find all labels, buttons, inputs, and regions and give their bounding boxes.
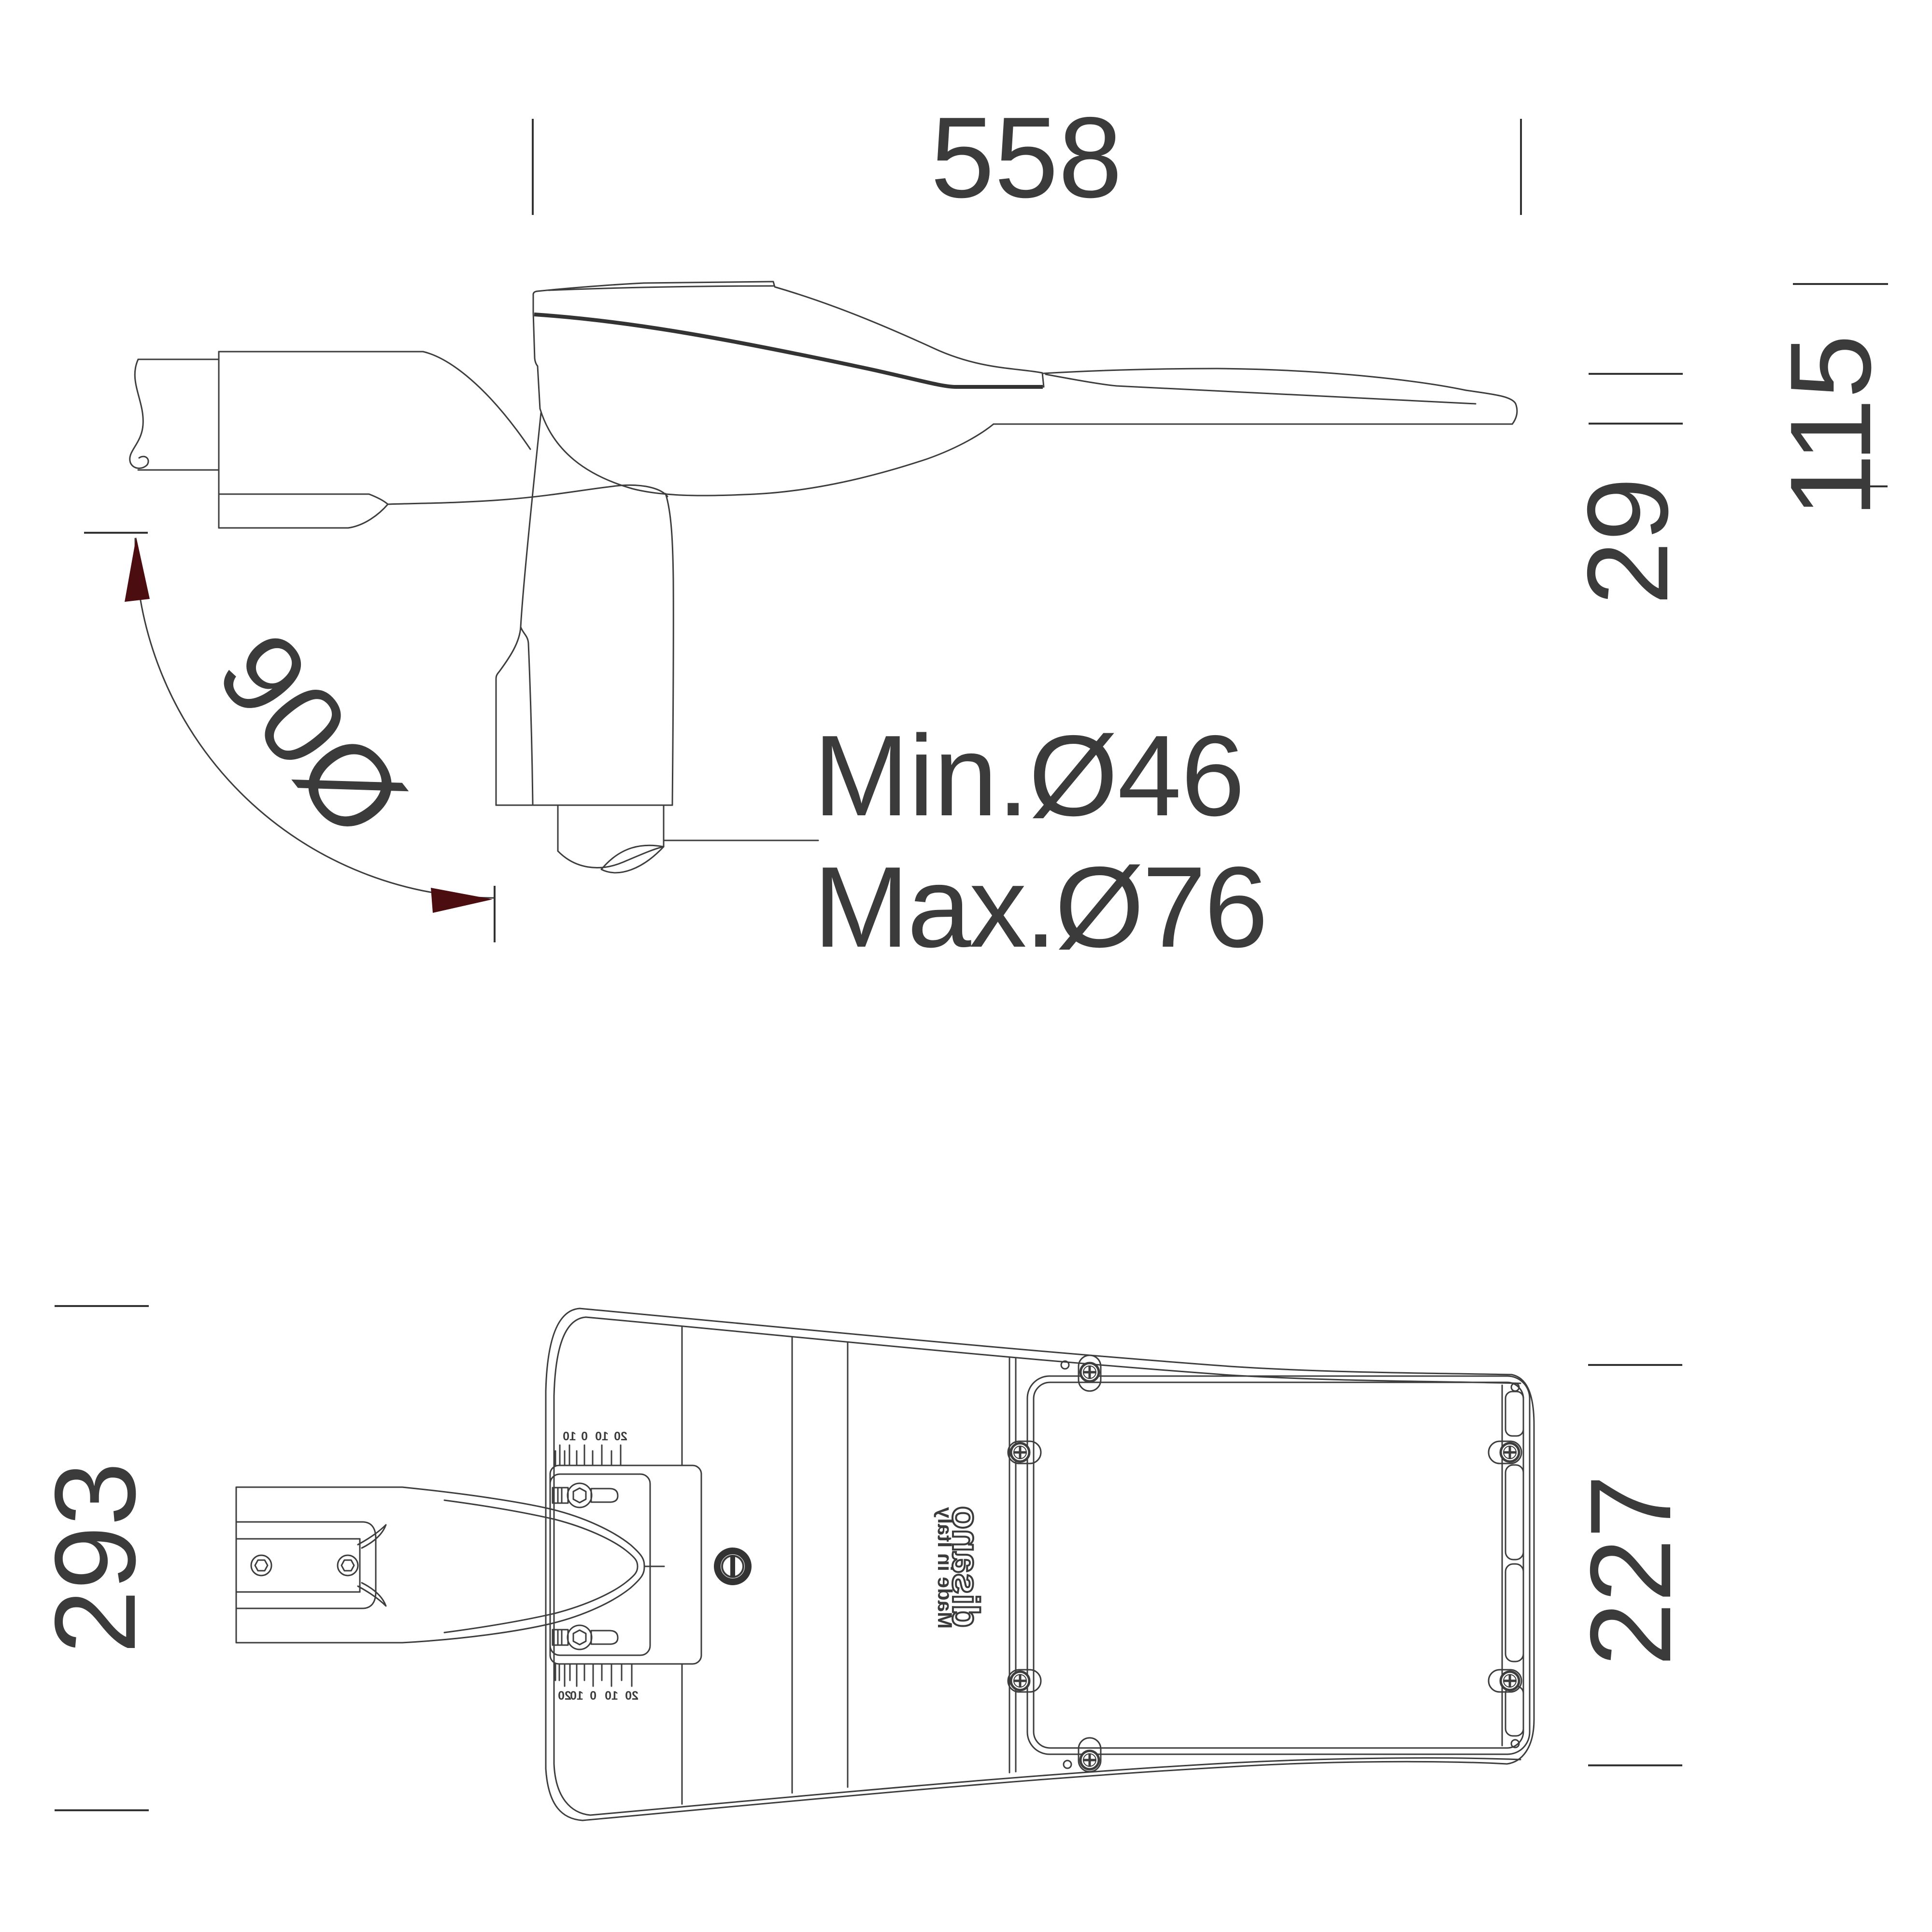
svg-text:20: 20 bbox=[614, 1430, 627, 1443]
svg-text:0: 0 bbox=[590, 1689, 597, 1703]
svg-text:20: 20 bbox=[625, 1689, 639, 1703]
svg-text:227: 227 bbox=[1567, 1475, 1695, 1666]
svg-text:10: 10 bbox=[595, 1430, 609, 1443]
svg-text:29: 29 bbox=[1564, 477, 1692, 605]
svg-text:disano: disano bbox=[945, 1506, 987, 1627]
svg-text:10: 10 bbox=[570, 1689, 583, 1703]
svg-text:Min.Ø46: Min.Ø46 bbox=[813, 712, 1244, 840]
svg-text:Max.Ø76: Max.Ø76 bbox=[813, 843, 1266, 971]
svg-text:293: 293 bbox=[31, 1462, 159, 1654]
svg-text:558: 558 bbox=[930, 94, 1122, 222]
svg-text:0: 0 bbox=[581, 1430, 588, 1443]
svg-text:20: 20 bbox=[558, 1689, 571, 1703]
svg-text:10: 10 bbox=[563, 1430, 576, 1443]
svg-text:115: 115 bbox=[1767, 335, 1895, 518]
svg-text:10: 10 bbox=[605, 1689, 618, 1703]
